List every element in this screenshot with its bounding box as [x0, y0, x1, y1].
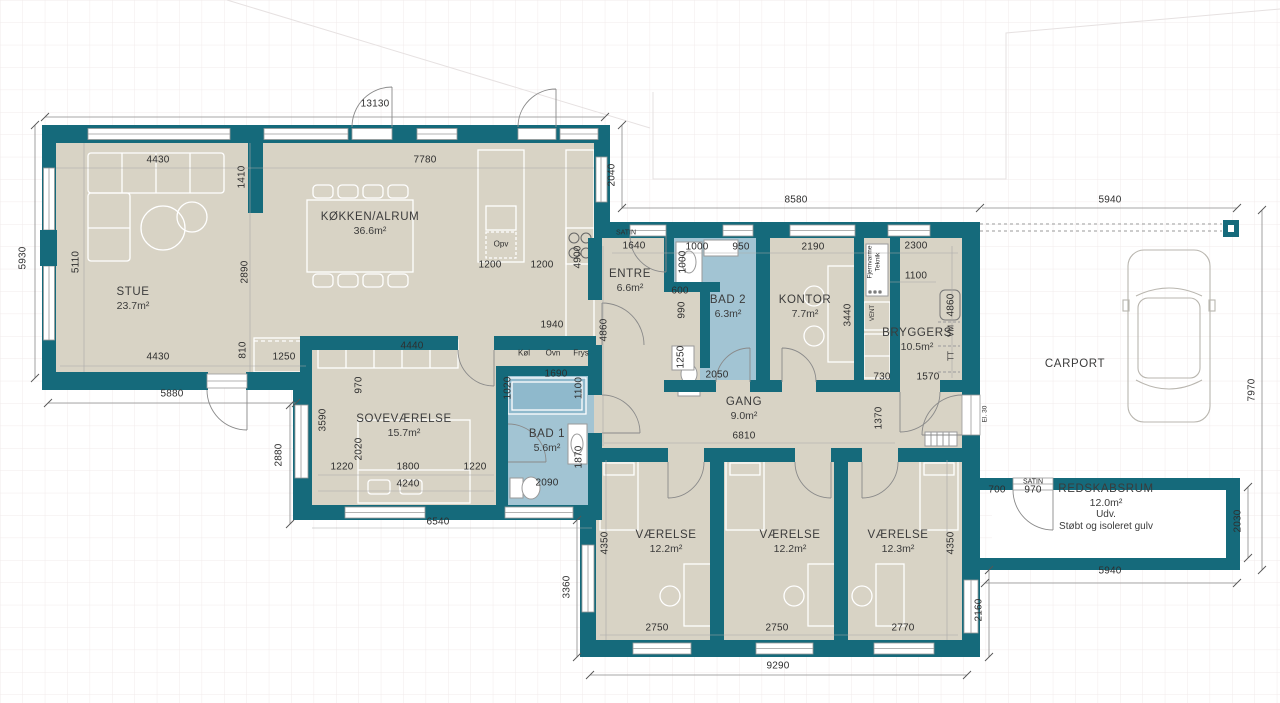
- wall-pier: [40, 230, 57, 266]
- floor-plan-drawing: [0, 0, 1280, 703]
- floor-plan-page: STUE23.7m²KØKKEN/ALRUM36.6m²SOVEVÆRELSE1…: [0, 0, 1280, 703]
- carport-post-core: [1228, 225, 1234, 232]
